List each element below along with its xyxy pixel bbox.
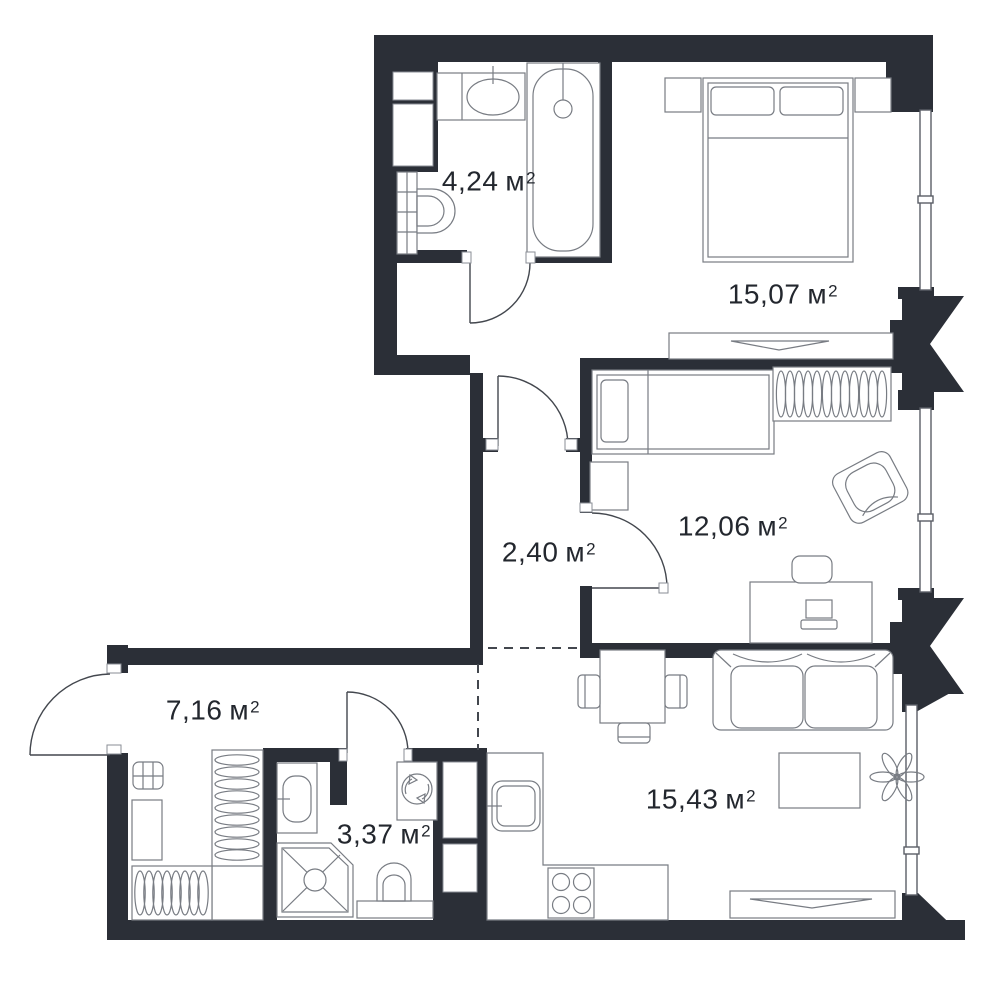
room-area-label-room: 12,06м2 [678, 510, 788, 542]
area-unit: м [725, 783, 745, 814]
double-bed [703, 78, 853, 262]
floor-plan: 4,24м2 15,07м2 12,06м2 2,40м2 7,16м2 3,3… [0, 0, 1002, 1000]
bathtub [527, 63, 600, 257]
laptop [801, 600, 837, 629]
shoe-cabinet [133, 762, 163, 789]
bedroom-window [918, 110, 933, 290]
stove [548, 868, 594, 918]
room-area-label-shower-room: 3,37м2 [337, 818, 431, 850]
floor-plan-canvas [0, 0, 1002, 1000]
area-sup: 2 [828, 281, 838, 300]
room-area-label-bathroom: 4,24м2 [442, 165, 536, 197]
vent-shaft [443, 844, 477, 892]
wall-segment [470, 373, 483, 648]
wall-segment [580, 586, 592, 646]
chair [578, 675, 600, 708]
room-area-label-living-kitchen: 15,43м2 [646, 783, 756, 815]
area-sup: 2 [421, 821, 431, 840]
room-door [592, 513, 667, 588]
area-value: 2,40 [502, 536, 559, 567]
shaft-niche [393, 104, 433, 166]
wall-segment [374, 355, 470, 375]
area-sup: 2 [250, 697, 260, 716]
area-unit: м [565, 536, 585, 567]
room-area-label-bedroom: 15,07м2 [728, 278, 838, 310]
area-value: 7,16 [166, 694, 223, 725]
vestibule-door [498, 376, 568, 446]
kitchen-fixtures [487, 753, 668, 920]
vent-shaft [443, 762, 477, 838]
wall-segment [374, 250, 467, 263]
shaft-niche [393, 72, 433, 100]
dining-table-set [578, 650, 687, 743]
area-value: 3,37 [337, 818, 394, 849]
area-value: 4,24 [442, 165, 499, 196]
wall-segment [128, 648, 483, 665]
clothes-rail-horizontal [132, 866, 212, 920]
nightstand [665, 78, 701, 112]
area-value: 15,07 [728, 278, 801, 309]
area-value: 12,06 [678, 510, 751, 541]
area-unit: м [400, 818, 420, 849]
washing-machine [397, 762, 437, 820]
room-furniture [590, 367, 911, 643]
nightstand [855, 78, 891, 112]
area-sup: 2 [778, 513, 788, 532]
wall-segment [886, 35, 933, 112]
vanity-sink [277, 763, 317, 833]
wall-segment [263, 748, 277, 924]
sofa [713, 650, 893, 730]
wall-segment [107, 920, 965, 940]
corridor-storage [132, 750, 263, 920]
area-sup: 2 [746, 786, 756, 805]
area-unit: м [807, 278, 827, 309]
area-sup: 2 [586, 539, 596, 558]
area-unit: м [229, 694, 249, 725]
area-sup: 2 [526, 168, 536, 187]
single-bed [592, 370, 774, 454]
wardrobe-rail [773, 367, 891, 421]
shower-cabin [277, 843, 353, 917]
room-area-label-hallway: 2,40м2 [502, 536, 596, 568]
tv-stand [730, 891, 895, 918]
balcony-arrow-marker [890, 296, 964, 392]
balcony-arrow-marker [890, 598, 964, 694]
dresser [669, 333, 893, 359]
washbasin [437, 66, 525, 120]
zone-boundary [478, 648, 580, 750]
shower-room-door [347, 692, 408, 753]
windows [904, 110, 933, 895]
armchair [829, 448, 911, 527]
toilet [357, 863, 433, 918]
doors [30, 263, 667, 755]
coffee-table [779, 753, 860, 808]
area-value: 15,43 [646, 783, 719, 814]
clothes-rail-vertical [212, 750, 263, 920]
bedroom-furniture [665, 78, 893, 359]
room-area-label-corridor: 7,16м2 [166, 694, 260, 726]
wall-segment [374, 35, 933, 62]
wall-segment [898, 390, 934, 410]
dining-table [600, 650, 665, 723]
bathroom-door [470, 263, 530, 323]
room-window [918, 408, 933, 592]
desk-chair [792, 556, 832, 583]
chair [618, 723, 650, 743]
area-unit: м [505, 165, 525, 196]
cabinet [132, 800, 162, 860]
nightstand [590, 462, 628, 510]
wall-segment [107, 753, 128, 940]
wall-segment [902, 893, 965, 938]
entrance-door [30, 674, 110, 755]
area-unit: м [757, 510, 777, 541]
chair [665, 675, 687, 708]
